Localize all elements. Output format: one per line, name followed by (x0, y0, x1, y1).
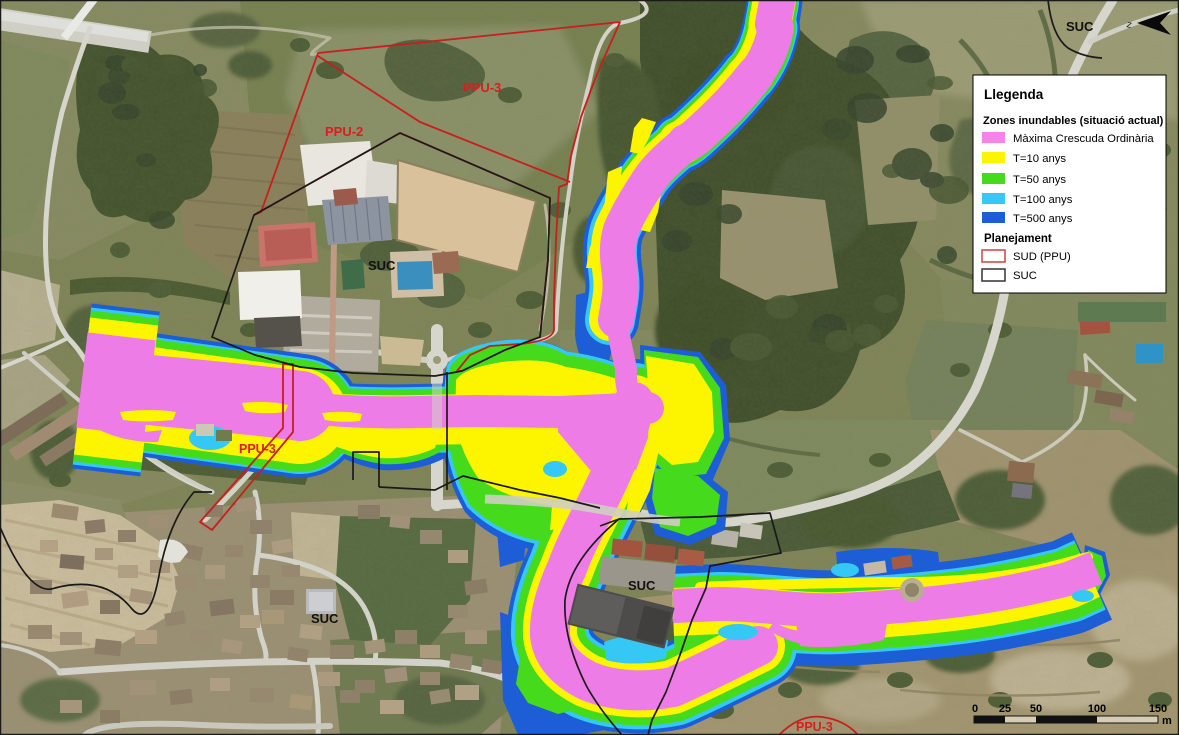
svg-text:Planejament: Planejament (984, 233, 1052, 245)
svg-text:SUC: SUC (368, 258, 396, 273)
svg-text:Màxima Crescuda Ordinària: Màxima Crescuda Ordinària (1013, 133, 1154, 145)
svg-text:T=50 anys: T=50 anys (1013, 174, 1066, 186)
svg-text:Llegenda: Llegenda (984, 87, 1044, 102)
svg-text:PPU-3: PPU-3 (239, 442, 276, 456)
svg-text:PPU-3: PPU-3 (463, 80, 501, 95)
svg-text:50: 50 (1030, 703, 1042, 715)
svg-text:SUC: SUC (311, 611, 339, 626)
svg-text:25: 25 (999, 703, 1011, 715)
svg-text:PPU-2: PPU-2 (325, 124, 363, 139)
svg-text:T=100 anys: T=100 anys (1013, 194, 1073, 206)
svg-text:SUC: SUC (1013, 270, 1037, 282)
svg-text:SUD (PPU): SUD (PPU) (1013, 251, 1071, 263)
svg-text:100: 100 (1088, 703, 1106, 715)
svg-text:SUC: SUC (1066, 19, 1094, 34)
svg-text:150: 150 (1149, 703, 1167, 715)
svg-text:Zones inundables (situació act: Zones inundables (situació actual) (983, 115, 1164, 127)
svg-text:T=10 anys: T=10 anys (1013, 153, 1066, 165)
svg-text:m: m (1162, 715, 1172, 727)
svg-text:PPU-3: PPU-3 (796, 720, 833, 734)
svg-text:T=500 anys: T=500 anys (1013, 213, 1073, 225)
svg-text:SUC: SUC (628, 578, 656, 593)
svg-text:0: 0 (972, 703, 978, 715)
